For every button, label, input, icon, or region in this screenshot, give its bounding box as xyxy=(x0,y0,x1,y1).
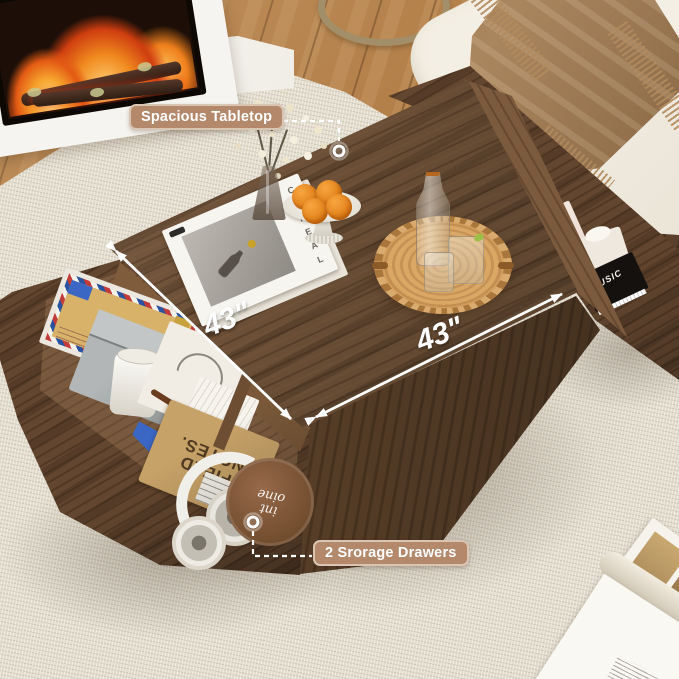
magazine-text-block xyxy=(603,655,659,679)
tray-handle xyxy=(498,262,514,269)
headphones-earcup xyxy=(172,516,226,570)
callout-drawers: 2 Srorage Drawers xyxy=(313,540,469,566)
vase-highlight xyxy=(266,170,269,213)
round-box-text: int oine xyxy=(218,450,322,554)
orange-fruit xyxy=(302,198,328,224)
cover-photo-bottle xyxy=(217,248,246,279)
callout-tabletop: Spacious Tabletop xyxy=(129,104,284,130)
drinking-glass xyxy=(424,252,454,292)
cover-photo-cap xyxy=(246,239,256,249)
tray-handle xyxy=(372,262,388,269)
product-scene: me MUSIC FIELD NOTES. int oine xyxy=(0,0,679,679)
round-box: int oine xyxy=(226,458,314,546)
orange-fruit xyxy=(326,194,352,220)
